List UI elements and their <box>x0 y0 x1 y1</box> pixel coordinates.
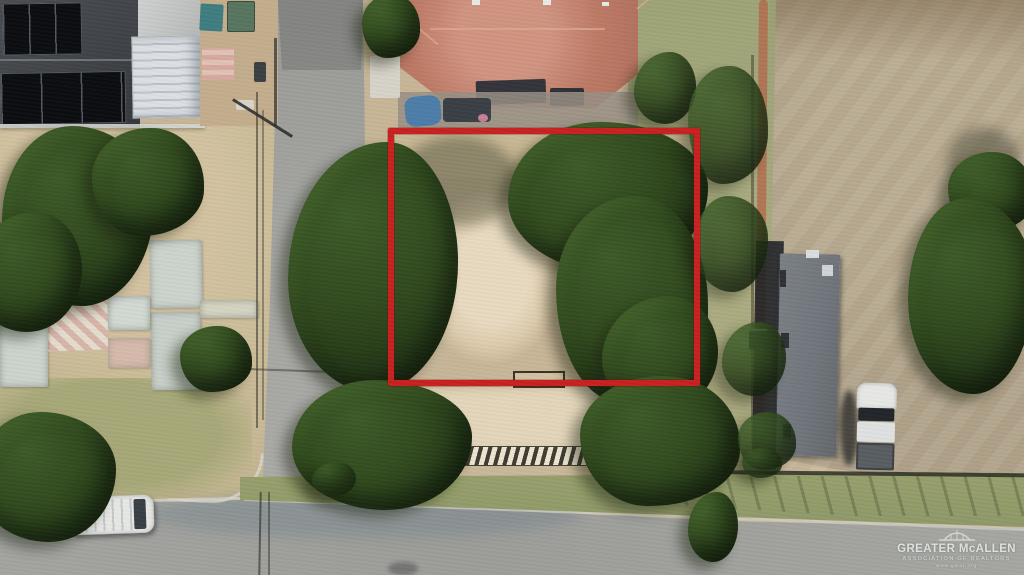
tree <box>580 376 740 506</box>
yard-fence <box>274 38 277 126</box>
van-windshield <box>133 499 146 529</box>
watermark-url: www.gmar.org <box>897 563 1016 569</box>
grass-tuft <box>312 462 356 496</box>
dirt-field-dark-top <box>770 0 1024 60</box>
truck-bed <box>856 442 895 470</box>
shrub <box>688 66 768 184</box>
road-vertical-dark-top <box>278 0 364 70</box>
yard-item-dark <box>254 62 266 82</box>
roof-ridge <box>430 28 605 30</box>
power-line <box>268 492 270 575</box>
truck-hood <box>856 382 897 409</box>
truck-windshield <box>858 408 894 422</box>
green-shed <box>227 1 255 32</box>
roof-ridge <box>0 59 138 61</box>
concrete-pad <box>370 56 400 98</box>
solar-panel-array <box>2 2 83 55</box>
aerial-photo: GREATER McALLEN ASSOCIATION OF REALTORS … <box>0 0 1024 575</box>
concrete-slab <box>108 296 150 330</box>
tree <box>908 198 1024 394</box>
pickup-truck <box>854 382 898 471</box>
roof-light-section <box>138 0 202 38</box>
metal-roof <box>131 35 202 118</box>
property-boundary-outline <box>388 128 700 386</box>
trailer-roof-vent <box>806 250 819 258</box>
roof-vent <box>602 2 609 6</box>
realtor-bridge-logo-icon <box>897 526 1016 542</box>
tree <box>92 128 204 236</box>
tree <box>180 326 252 392</box>
trailer-roof-vent <box>822 265 833 276</box>
power-line <box>262 110 264 420</box>
pink-patio-tiles <box>202 48 234 80</box>
watermark-title: GREATER McALLEN <box>897 542 1016 556</box>
building-base-wall <box>0 124 205 128</box>
blue-tarp <box>404 94 442 127</box>
tree <box>688 492 738 562</box>
roof-vent <box>543 0 551 5</box>
watermark: GREATER McALLEN ASSOCIATION OF REALTORS … <box>897 526 1016 569</box>
trailer-window <box>780 270 786 287</box>
pink-item <box>478 114 488 122</box>
grass-tuft <box>742 448 782 478</box>
truck-cab <box>857 422 896 443</box>
teal-tarp <box>199 3 223 31</box>
road-dark-spot <box>388 562 418 575</box>
concrete-slab <box>149 240 202 309</box>
solar-panel-array <box>0 71 126 125</box>
pink-slab <box>108 338 150 368</box>
concrete-path <box>200 300 258 318</box>
roof-vent <box>472 0 480 5</box>
concrete-slab <box>0 325 48 387</box>
power-line <box>256 92 258 428</box>
